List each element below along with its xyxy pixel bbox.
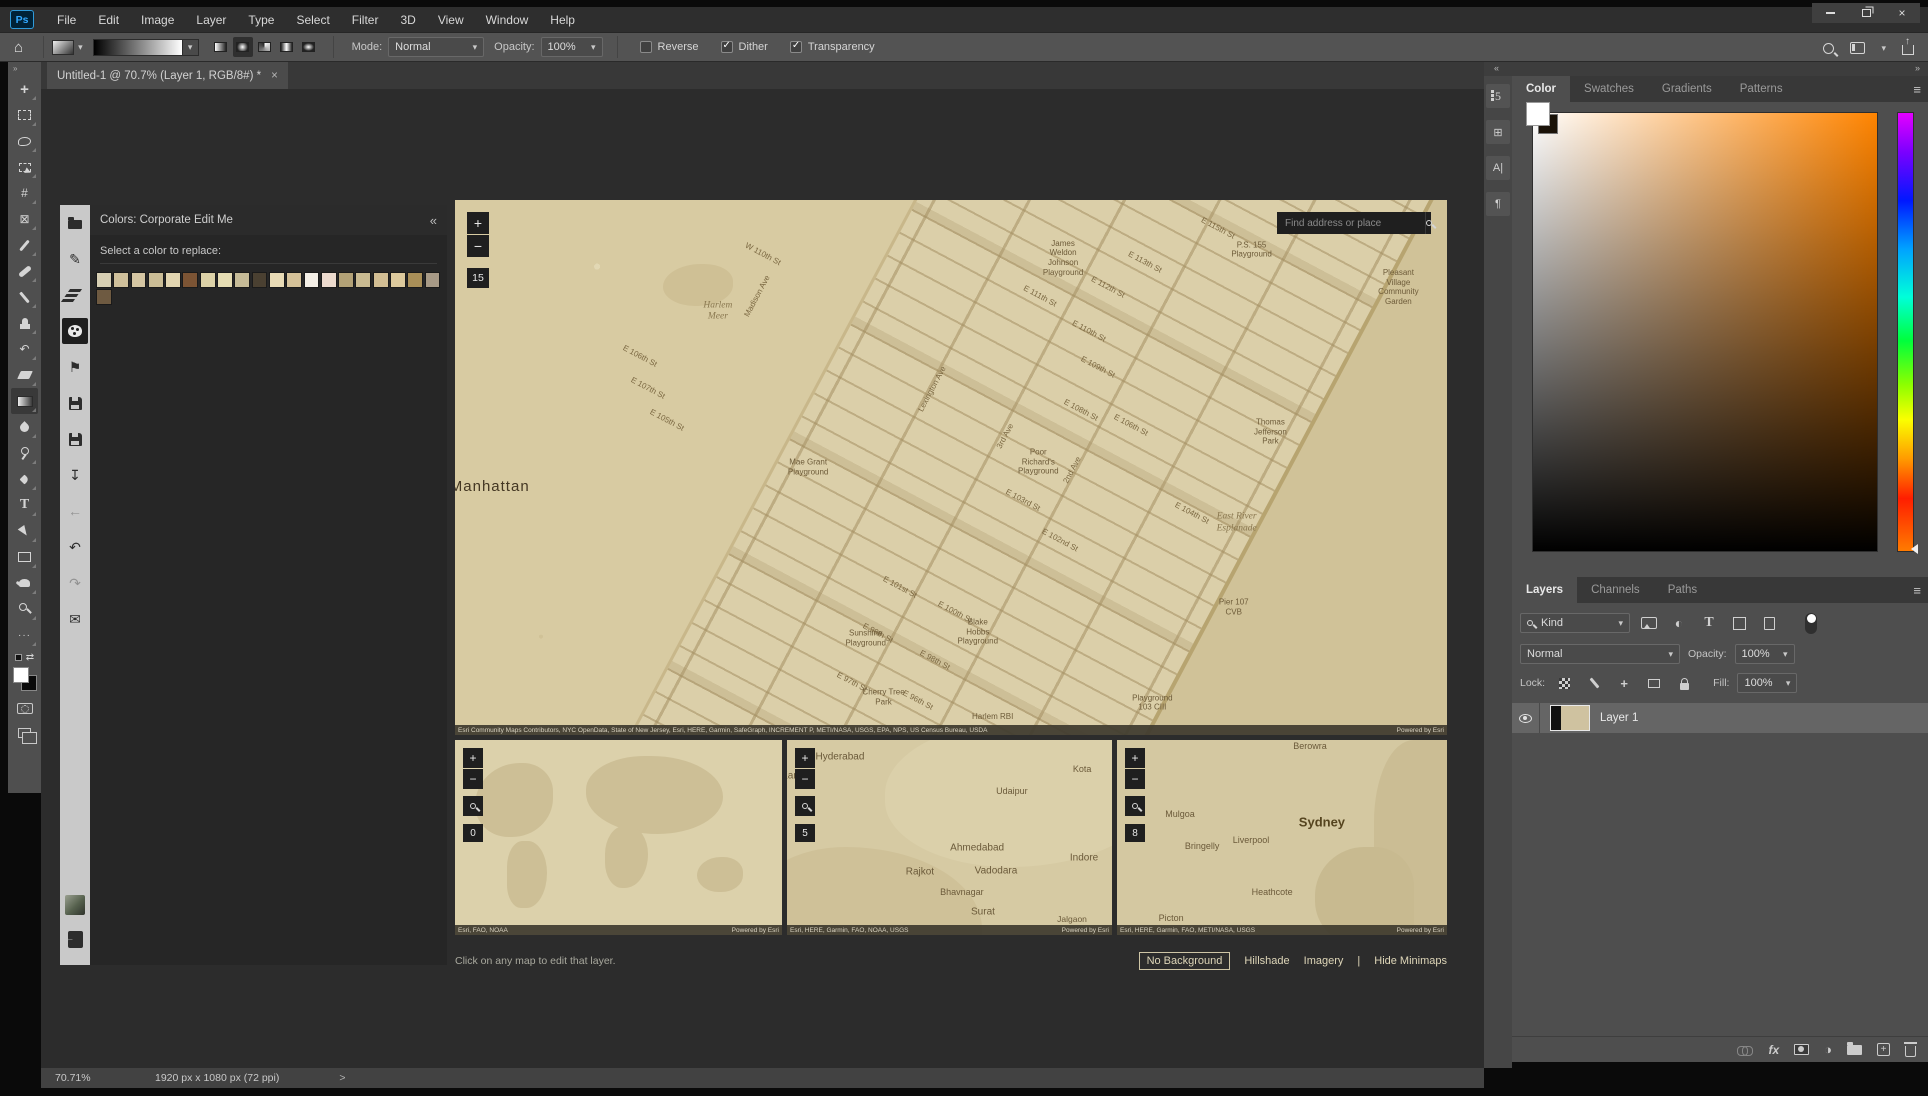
color-wells — [13, 667, 37, 691]
zoom-level-badge: 0 — [463, 824, 483, 842]
minimap-world[interactable]: + − 0 Esri, FAO, NOAA Powered by Esri — [455, 740, 782, 935]
map-label: Sunshine Playground — [845, 629, 885, 648]
line-edit-icon[interactable]: ✎ — [62, 246, 88, 272]
map-export-icon[interactable]: ⚑ — [62, 354, 88, 380]
menu-item[interactable]: Type — [237, 7, 285, 32]
screen-mode-icon[interactable] — [18, 728, 31, 738]
document-tab-bar: Untitled-1 @ 70.7% (Layer 1, RGB/8#) * × — [41, 62, 1484, 89]
city-label: Bhavnagar — [940, 887, 984, 897]
color-swatch[interactable] — [217, 272, 233, 288]
kind-filter-select[interactable]: Kind ▾ — [1520, 613, 1630, 633]
zoom-in-button[interactable]: + — [1125, 748, 1145, 768]
gradient-type-buttons — [211, 37, 319, 57]
color-swatch[interactable] — [269, 272, 285, 288]
clone-stamp-tool[interactable] — [11, 310, 38, 336]
lock-position-icon[interactable]: + — [1613, 672, 1635, 694]
save-icon[interactable] — [62, 390, 88, 416]
color-swatch[interactable] — [390, 272, 406, 288]
move-tool[interactable]: + — [11, 76, 38, 102]
minimize-button[interactable] — [1812, 3, 1848, 23]
chevron-down-icon[interactable]: ▾ — [182, 40, 198, 55]
powered-by-esri: Powered by Esri — [1062, 927, 1109, 934]
menu-bar: Ps FileEditImageLayerTypeSelectFilter3DV… — [0, 7, 1928, 32]
plugin-panel: Colors: Corporate Edit Me « Select a col… — [90, 205, 447, 965]
home-icon[interactable]: ⌂ — [14, 39, 23, 56]
layers-icon[interactable] — [62, 282, 88, 308]
photoshop-window: Ps FileEditImageLayerTypeSelectFilter3DV… — [0, 0, 1928, 1096]
city-label: Heathcote — [1252, 887, 1293, 897]
frame-tool[interactable]: ⊠ — [11, 206, 38, 232]
zoom-in-button[interactable]: + — [467, 212, 489, 234]
minimap-india[interactable]: HyderabadKarachiKotaUdaipurAhmedabadIndo… — [787, 740, 1112, 935]
city-label: Vadodara — [975, 866, 1018, 877]
menu-item[interactable]: Select — [285, 7, 340, 32]
color-panel: ColorSwatchesGradientsPatterns ≡ — [1512, 76, 1928, 577]
share-icon[interactable] — [1902, 45, 1914, 55]
opacity-select[interactable]: 100%▾ — [541, 37, 603, 57]
city-label: Rajkot — [906, 867, 934, 878]
blur-tool[interactable] — [11, 414, 38, 440]
city-label: Hyderabad — [816, 752, 865, 763]
color-swatch[interactable] — [234, 272, 250, 288]
menu-item[interactable]: Layer — [185, 7, 237, 32]
layer-opacity-select[interactable]: 100%▾ — [1735, 644, 1795, 664]
search-icon — [802, 803, 808, 809]
minimap-sydney[interactable]: BerowraMulgoaSydneyLiverpoolBringellyHea… — [1117, 740, 1447, 935]
layer-thumbnail[interactable] — [1550, 705, 1590, 731]
panel-tab[interactable]: Patterns — [1726, 76, 1797, 102]
color-replace-prompt: Select a color to replace: — [100, 245, 437, 264]
search-button[interactable] — [1425, 212, 1432, 234]
menu-item[interactable]: Window — [475, 7, 540, 32]
close-tab-icon[interactable]: × — [271, 70, 278, 82]
color-swatch[interactable] — [286, 272, 302, 288]
link-layers-icon[interactable] — [1737, 1046, 1753, 1054]
plugin-toolbar: ✎⚑↧←↶↷✉ — [60, 205, 90, 965]
map-label: Manhattan — [455, 478, 530, 496]
lock-all-icon[interactable] — [1673, 672, 1695, 694]
opacity-label: Opacity: — [1688, 648, 1727, 660]
plugin-panel-icon[interactable]: 5 — [1486, 84, 1510, 108]
color-swatch[interactable] — [338, 272, 354, 288]
map-document: W 110th StE 115th StE 113th StE 112th St… — [455, 200, 1447, 975]
city-label: Liverpool — [1233, 835, 1270, 845]
collapse-toolbar-icon[interactable]: » — [8, 62, 41, 76]
city-label: Sydney — [1299, 815, 1345, 830]
color-swatch[interactable] — [373, 272, 389, 288]
zoom-level-badge: 8 — [1125, 824, 1145, 842]
color-swatch[interactable] — [96, 272, 112, 288]
default-colors-icon[interactable] — [15, 654, 22, 661]
new-group-icon[interactable] — [1847, 1045, 1862, 1055]
map-label: Harlem RBI — [972, 712, 1013, 722]
crop-tool[interactable]: # — [11, 180, 38, 206]
city-label: Udaipur — [996, 786, 1028, 796]
color-swatch[interactable] — [182, 272, 198, 288]
eye-icon — [1519, 714, 1532, 723]
sign-out-icon[interactable] — [68, 931, 83, 948]
map-label: Pleasant Village Community Garden — [1378, 268, 1418, 306]
gradient-editor-button[interactable]: ▾ — [93, 39, 199, 56]
basemap-option[interactable]: Hillshade — [1244, 955, 1289, 967]
foreground-color-chip[interactable] — [1526, 102, 1550, 126]
diamond-gradient-button[interactable] — [299, 37, 319, 57]
layer-style-icon[interactable]: fx — [1768, 1043, 1779, 1057]
rectangular-marquee-tool[interactable] — [11, 102, 38, 128]
city-label: Surat — [971, 907, 995, 918]
redo-icon[interactable]: ↷ — [62, 570, 88, 596]
panel-tab[interactable]: Swatches — [1570, 76, 1648, 102]
map-attribution: Esri, FAO, NOAA — [458, 927, 508, 934]
avatar[interactable] — [65, 895, 85, 915]
color-swatch[interactable] — [165, 272, 181, 288]
download-icon[interactable]: ↧ — [62, 462, 88, 488]
hand-tool[interactable] — [11, 570, 38, 596]
collapsed-panels-dock: 5⊞A|¶ — [1484, 76, 1512, 1068]
color-swatch[interactable] — [355, 272, 371, 288]
undo-icon[interactable]: ↶ — [62, 534, 88, 560]
powered-by-esri: Powered by Esri — [732, 927, 779, 934]
filter-adjustment-layers-icon[interactable]: ◐ — [1668, 612, 1690, 634]
brush-tool[interactable] — [11, 284, 38, 310]
blend-mode-select[interactable]: Normal▾ — [1520, 644, 1680, 664]
workspace-icon[interactable] — [1850, 42, 1865, 54]
panel-tab[interactable]: Color — [1512, 76, 1570, 102]
color-swatch[interactable] — [321, 272, 337, 288]
panel-menu-icon[interactable]: ≡ — [1913, 82, 1920, 97]
menu-item[interactable]: Image — [130, 7, 185, 32]
option-checkbox[interactable]: Transparency — [790, 41, 875, 53]
zoom-level-badge: 5 — [795, 824, 815, 842]
object-selection-tool[interactable] — [11, 154, 38, 180]
map-attribution: Esri, HERE, Garmin, FAO, METI/NASA, USGS — [1120, 927, 1255, 934]
lock-transparency-icon[interactable] — [1553, 672, 1575, 694]
color-swatch[interactable] — [425, 272, 441, 288]
save-as-icon[interactable] — [62, 426, 88, 452]
option-checkbox[interactable]: Dither — [721, 41, 768, 53]
panel-tab[interactable]: Paths — [1654, 577, 1711, 603]
edit-toolbar-button[interactable]: ··· — [11, 622, 38, 648]
map-label: James Weldon Johnson Playground — [1043, 239, 1083, 277]
zoom-level-badge: 15 — [467, 268, 489, 288]
layer-visibility-toggle[interactable] — [1512, 703, 1540, 733]
color-swatch-grid — [90, 270, 447, 307]
layer-row[interactable]: Layer 1 — [1512, 703, 1928, 733]
feedback-email-icon[interactable]: ✉ — [62, 606, 88, 632]
menu-item[interactable]: 3D — [389, 7, 426, 32]
panel-tab[interactable]: Channels — [1577, 577, 1654, 603]
zoom-in-button[interactable]: + — [463, 748, 483, 768]
gradient-preview — [94, 40, 182, 55]
reflected-gradient-button[interactable] — [277, 37, 297, 57]
collapse-dock-icon[interactable]: » — [1915, 63, 1920, 73]
mode-select[interactable]: Normal▾ — [388, 37, 484, 57]
spot-healing-brush-tool[interactable] — [11, 258, 38, 284]
map-label: Cherry Tree Park — [862, 687, 904, 706]
zoom-out-button[interactable]: − — [795, 769, 815, 789]
paragraph-panel-icon[interactable]: ¶ — [1486, 192, 1510, 216]
search-button[interactable] — [795, 796, 815, 816]
zoom-percentage[interactable]: 70.71% — [55, 1072, 107, 1084]
open-mapboard-icon[interactable] — [62, 210, 88, 236]
zoom-in-button[interactable]: + — [795, 748, 815, 768]
city-label: Picton — [1159, 913, 1184, 923]
new-layer-icon[interactable]: + — [1877, 1043, 1890, 1056]
menu-item[interactable]: Filter — [341, 7, 390, 32]
edit-hint-text: Click on any map to edit that layer. — [455, 955, 616, 967]
map-label: Playground 103 CIII — [1132, 693, 1172, 712]
fill-select[interactable]: 100%▾ — [1737, 673, 1797, 693]
map-label: East River Esplanade — [1217, 512, 1257, 535]
saturation-brightness-picker[interactable] — [1532, 112, 1878, 552]
rectangle-tool[interactable] — [11, 544, 38, 570]
color-swatch[interactable] — [113, 272, 129, 288]
basemap-option[interactable]: No Background — [1139, 952, 1231, 970]
path-selection-tool[interactable] — [11, 518, 38, 544]
search-input[interactable] — [1277, 212, 1425, 234]
search-button[interactable] — [463, 796, 483, 816]
city-label: Indore — [1070, 852, 1098, 863]
zoom-out-button[interactable]: − — [467, 235, 489, 257]
color-swatch[interactable] — [252, 272, 268, 288]
map-label: Mae Grant Playground — [788, 457, 828, 476]
window-controls: × — [1812, 3, 1920, 23]
search-icon[interactable] — [1823, 43, 1834, 54]
pen-tool[interactable] — [11, 466, 38, 492]
document-title: Untitled-1 @ 70.7% (Layer 1, RGB/8#) * — [57, 70, 261, 82]
city-label: Jalgaon — [1057, 914, 1087, 924]
main-map[interactable]: W 110th StE 115th StE 113th StE 112th St… — [455, 200, 1447, 735]
document-tab[interactable]: Untitled-1 @ 70.7% (Layer 1, RGB/8#) * × — [47, 62, 288, 89]
powered-by-esri: Powered by Esri — [1397, 727, 1444, 734]
city-label: Mulgoa — [1165, 809, 1195, 819]
tool-preset-picker[interactable]: ▾ — [52, 40, 83, 55]
linear-gradient-button[interactable] — [211, 37, 231, 57]
hue-slider[interactable] — [1897, 112, 1914, 552]
eraser-tool[interactable] — [11, 362, 38, 388]
layers-panel: LayersChannelsPaths ≡ Kind ▾ ◐ T Normal▾… — [1512, 577, 1928, 1062]
search-icon — [470, 803, 476, 809]
map-attribution: Esri, HERE, Garmin, FAO, NOAA, USGS — [790, 927, 908, 934]
city-label: Ahmedabad — [950, 842, 1004, 853]
powered-by-esri: Powered by Esri — [1397, 927, 1444, 934]
options-bar: ⌂ ▾ ▾ Mode: Normal▾ Opacity: 100%▾ Rever… — [0, 32, 1928, 62]
map-label: Poor Richard's Playground — [1018, 448, 1058, 477]
map-label: Pier 107 CVB — [1219, 598, 1249, 617]
document-dimensions: 1920 px x 1080 px (72 ppi) — [155, 1072, 279, 1084]
search-icon — [1527, 620, 1533, 626]
dodge-tool[interactable] — [11, 440, 38, 466]
menu-item[interactable]: File — [46, 7, 87, 32]
map-label: Harlem Meer — [703, 300, 732, 323]
city-label: Bringelly — [1185, 841, 1220, 851]
color-swatch[interactable] — [148, 272, 164, 288]
gradient-tool[interactable] — [11, 388, 38, 414]
photoshop-logo[interactable]: Ps — [10, 10, 34, 29]
back-icon[interactable]: ← — [62, 498, 88, 524]
zoom-tool[interactable] — [11, 596, 38, 622]
basemap-option[interactable]: Imagery — [1304, 955, 1344, 967]
delete-layer-icon[interactable] — [1905, 1046, 1916, 1057]
angle-gradient-button[interactable] — [255, 37, 275, 57]
search-button[interactable] — [1125, 796, 1145, 816]
menu-item[interactable]: View — [427, 7, 475, 32]
lasso-tool[interactable] — [11, 128, 38, 154]
gradient-preset-icon — [52, 40, 74, 55]
color-swatch[interactable] — [96, 289, 112, 305]
lock-artboard-icon[interactable] — [1643, 672, 1665, 694]
swap-colors-icon[interactable]: ⇄ — [26, 652, 34, 663]
color-swatch[interactable] — [407, 272, 423, 288]
filter-smart-objects-icon[interactable] — [1758, 612, 1780, 634]
panel-tab[interactable]: Layers — [1512, 577, 1577, 603]
add-mask-icon[interactable] — [1794, 1044, 1809, 1055]
hide-minimaps-link[interactable]: Hide Minimaps — [1374, 955, 1447, 967]
fill-label: Fill: — [1713, 677, 1729, 689]
filter-shape-layers-icon[interactable] — [1728, 612, 1750, 634]
color-swatch[interactable] — [200, 272, 216, 288]
map-search-box — [1277, 212, 1431, 234]
close-button[interactable]: × — [1884, 3, 1920, 23]
zoom-out-button[interactable]: − — [1125, 769, 1145, 789]
map-attribution: Esri Community Maps Contributors, NYC Op… — [458, 727, 987, 734]
quick-mask-icon[interactable] — [17, 703, 33, 714]
menu-item[interactable]: Help — [539, 7, 586, 32]
lock-label: Lock: — [1520, 677, 1545, 689]
city-label: Kota — [1073, 764, 1092, 774]
map-label: P.S. 155 Playground — [1231, 240, 1271, 259]
city-label: Berowra — [1293, 741, 1327, 751]
panel-menu-icon[interactable]: ≡ — [1913, 583, 1920, 598]
search-icon — [1426, 220, 1432, 226]
filter-toggle[interactable] — [1800, 612, 1822, 634]
expand-dock-icon[interactable]: « — [1494, 63, 1499, 73]
adjustment-layer-icon[interactable]: ◑ — [1824, 1042, 1832, 1057]
filter-type-layers-icon[interactable]: T — [1698, 612, 1720, 634]
type-tool[interactable]: T — [11, 492, 38, 518]
color-swatch[interactable] — [131, 272, 147, 288]
radial-gradient-button[interactable] — [233, 37, 253, 57]
map-label: Thomas Jefferson Park — [1254, 418, 1287, 447]
search-icon — [1132, 803, 1138, 809]
status-bar: 70.71% 1920 px x 1080 px (72 ppi) > — [41, 1068, 1484, 1088]
color-palette-icon[interactable] — [62, 318, 88, 344]
collapse-panel-icon[interactable]: « — [430, 213, 437, 228]
character-panel-icon[interactable]: A| — [1486, 156, 1510, 180]
chevron-down-icon[interactable]: ▾ — [1881, 43, 1886, 54]
plugin-panel-title: Colors: Corporate Edit Me — [100, 214, 233, 226]
opacity-label: Opacity: — [494, 41, 534, 53]
filter-pixel-layers-icon[interactable] — [1638, 612, 1660, 634]
status-chevron-icon[interactable]: > — [339, 1072, 345, 1084]
mode-label: Mode: — [352, 41, 383, 53]
eyedropper-tool[interactable] — [11, 232, 38, 258]
history-brush-tool[interactable]: ↶ — [11, 336, 38, 362]
restore-button[interactable] — [1848, 3, 1884, 23]
hue-slider-handle[interactable] — [1906, 544, 1918, 554]
layer-name: Layer 1 — [1600, 712, 1638, 724]
foreground-color-well[interactable] — [13, 667, 29, 683]
panel-tab[interactable]: Gradients — [1648, 76, 1726, 102]
tools-panel: » +#⊠↶T··· ⇄ — [8, 62, 41, 793]
option-checkbox[interactable]: Reverse — [640, 41, 699, 53]
menu-item[interactable]: Edit — [87, 7, 130, 32]
panel-icon[interactable]: ⊞ — [1486, 120, 1510, 144]
color-swatch[interactable] — [304, 272, 320, 288]
lock-pixels-icon[interactable] — [1583, 672, 1605, 694]
map-label: Blake Hobbs Playground — [958, 618, 998, 647]
zoom-out-button[interactable]: − — [463, 769, 483, 789]
